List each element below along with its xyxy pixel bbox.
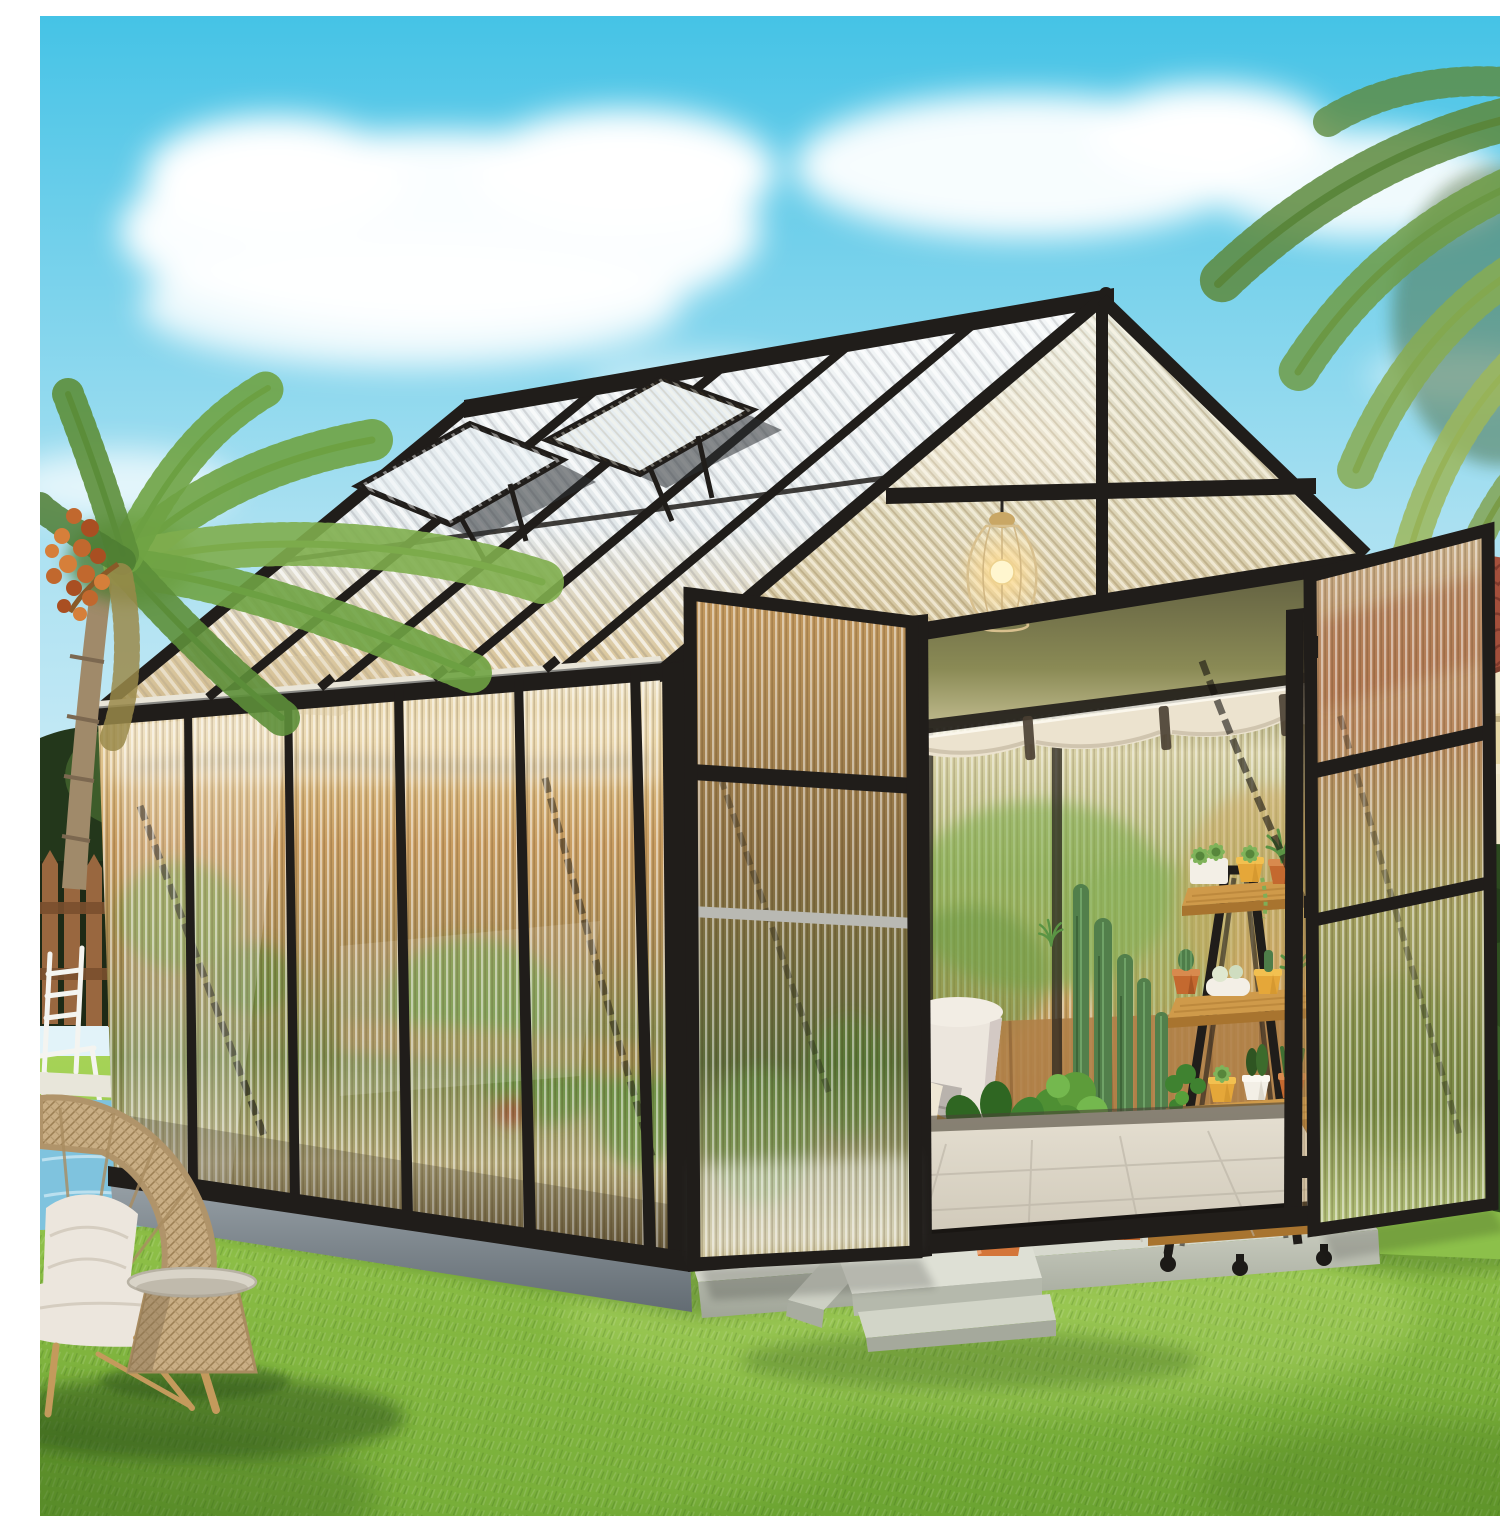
backyard-greenhouse-photo: Sunny backyard product photo of a black … [40,16,1500,1516]
door-right-open [1302,530,1500,1260]
door-left-open [690,594,936,1300]
door-jamb-right [1284,608,1304,1218]
gable-mullion [1096,306,1108,610]
side-table [128,1268,256,1372]
